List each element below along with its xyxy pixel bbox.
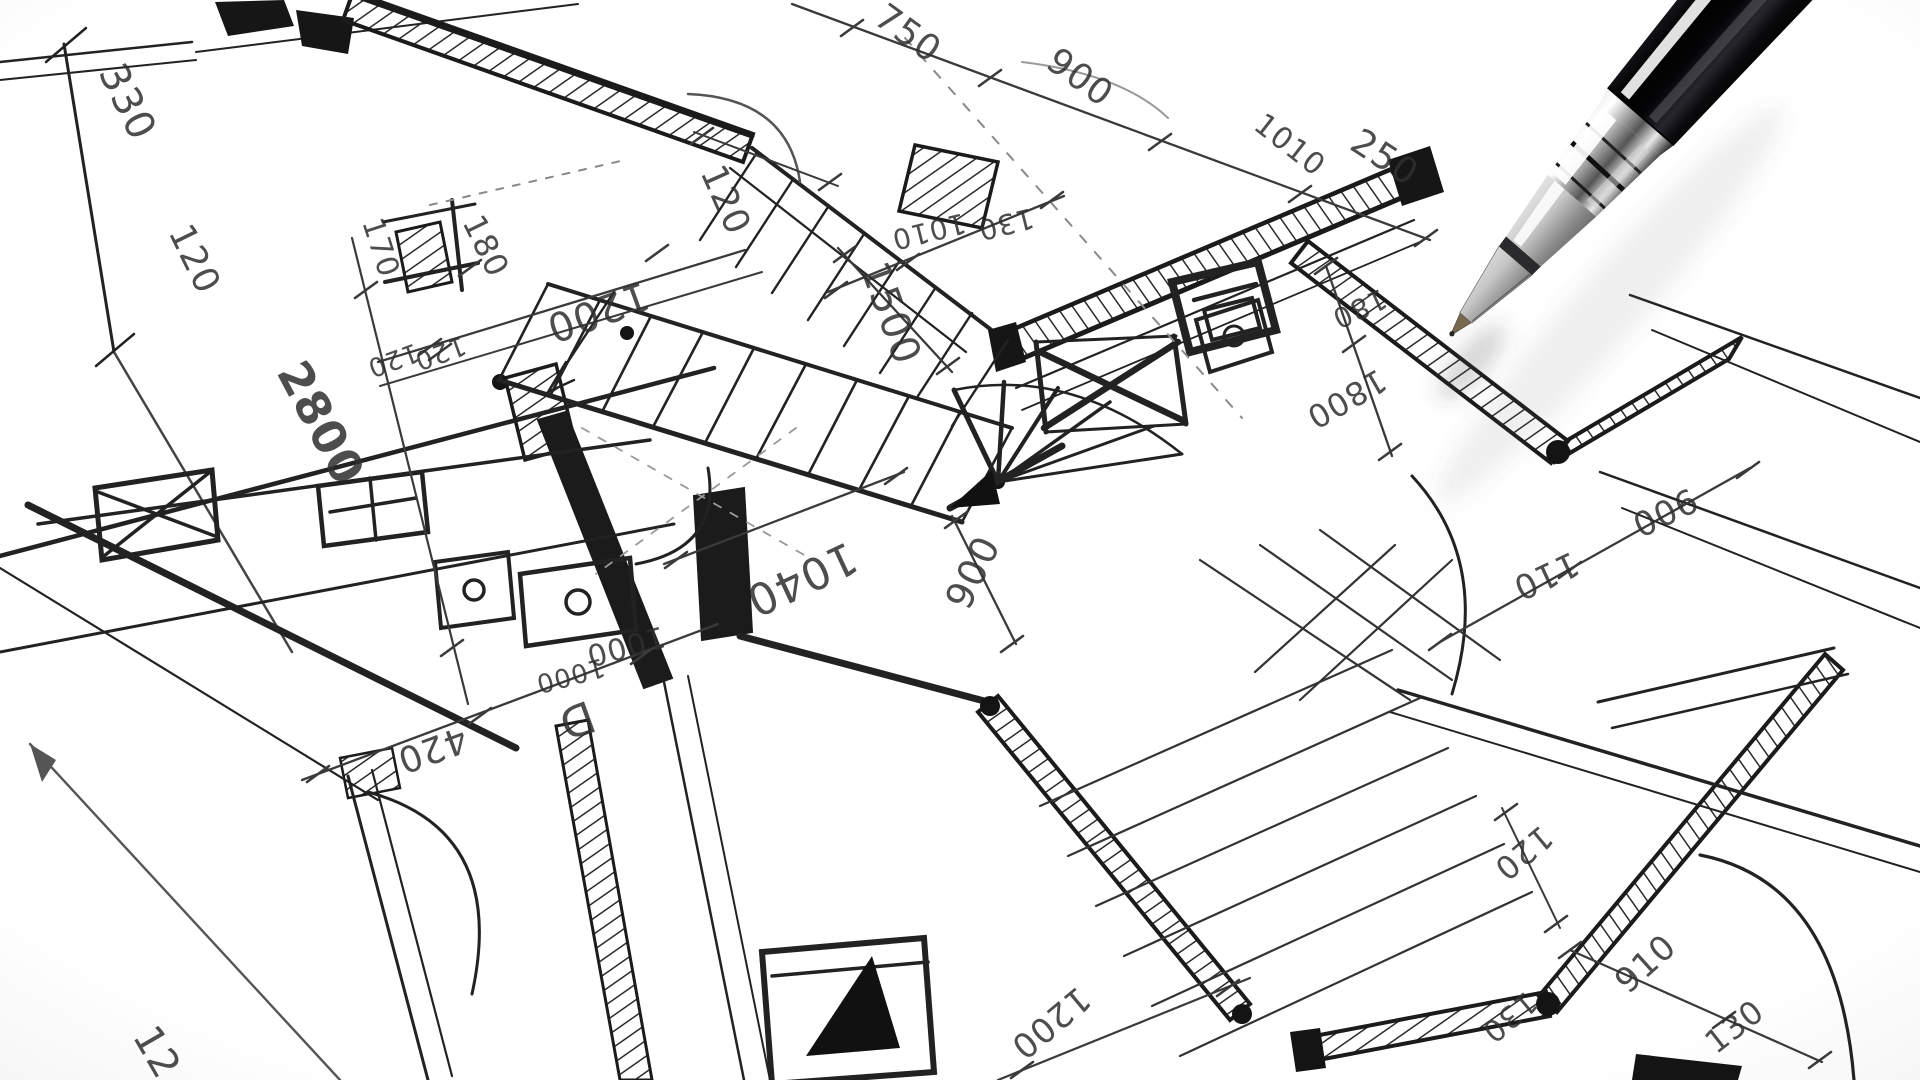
floor-plan-sketch: 3301201701801200120120280075090010102501… bbox=[0, 0, 1920, 1080]
floor-plan-photo: 3301201701801200120120280075090010102501… bbox=[0, 0, 1920, 1080]
